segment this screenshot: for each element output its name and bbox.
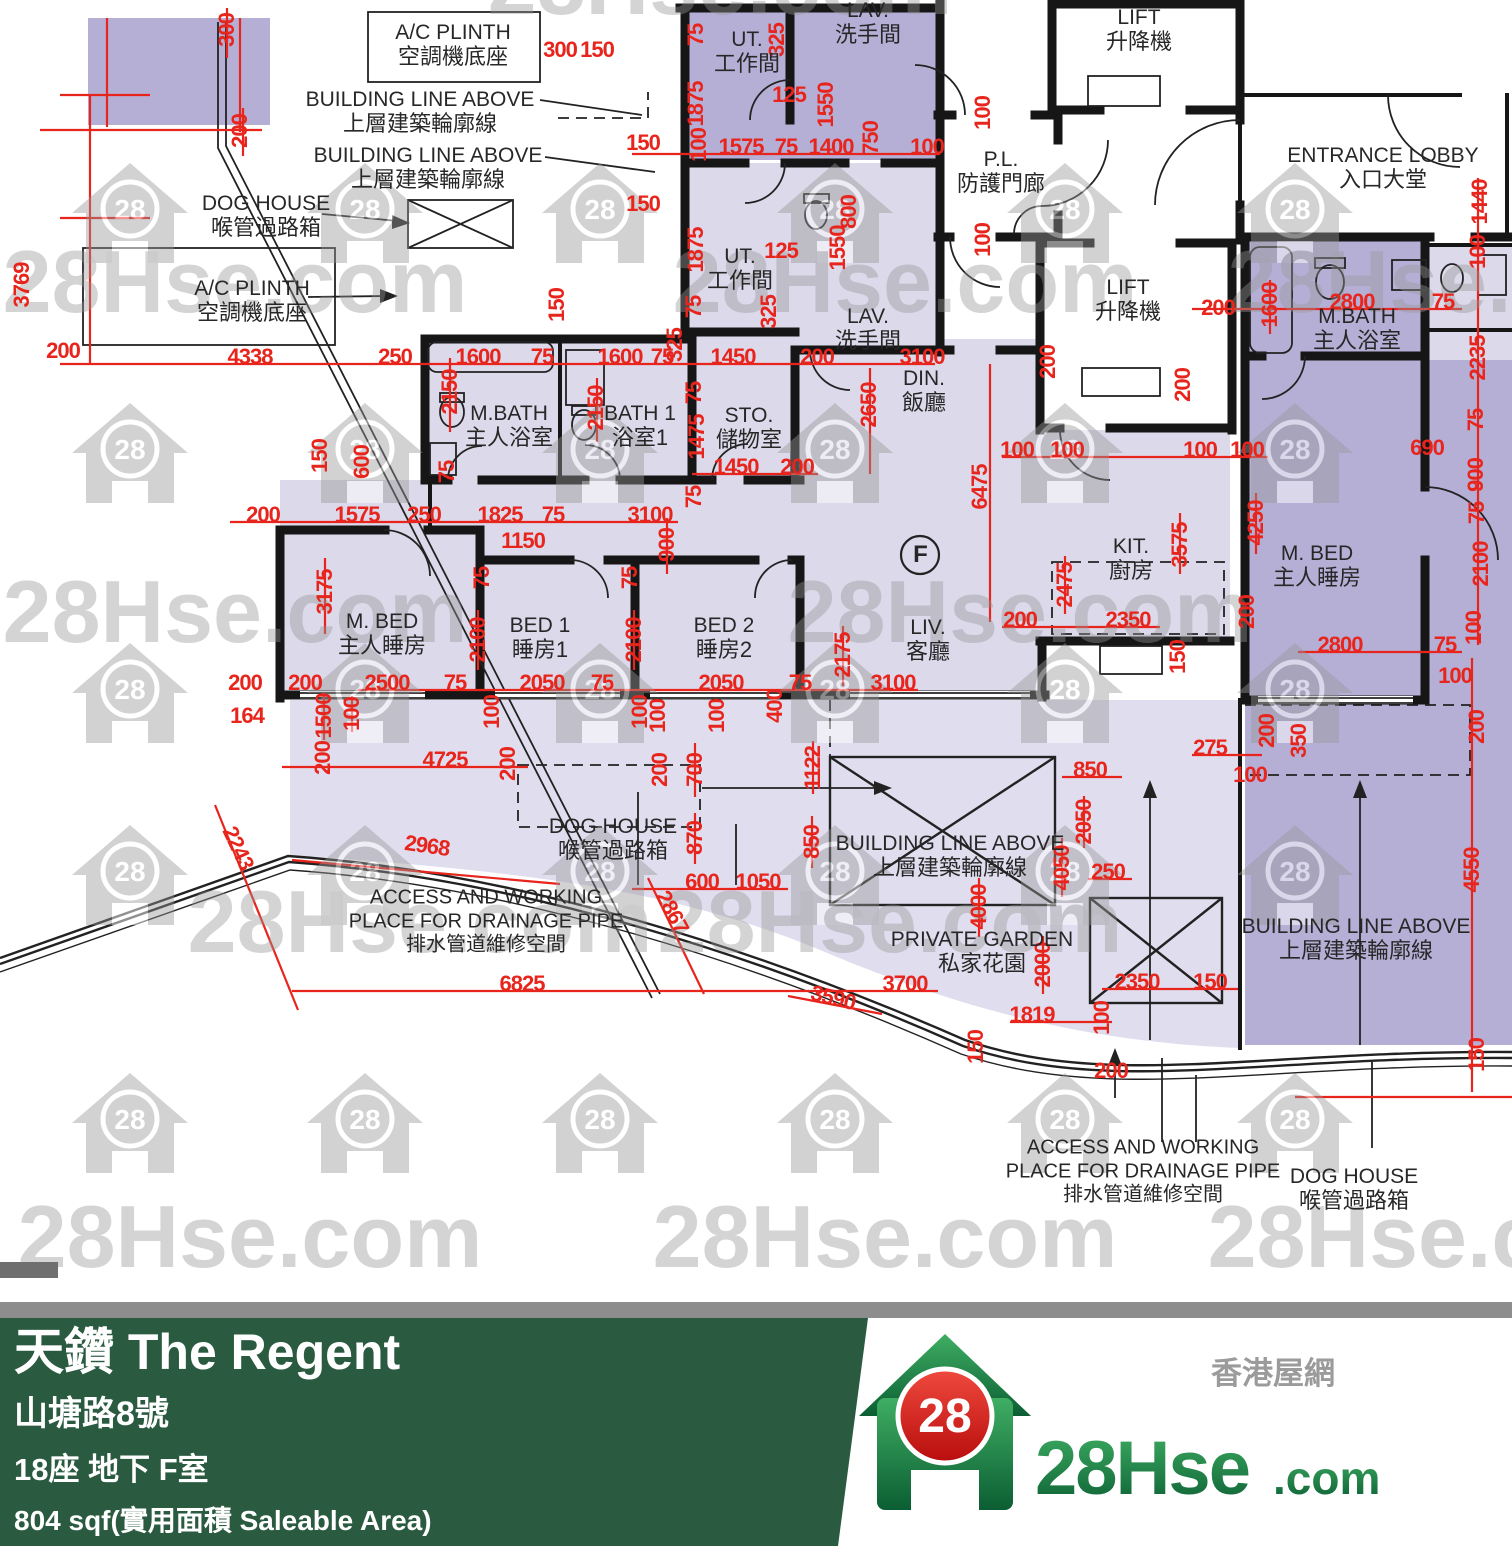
room-label: BUILDING LINE ABOVE上層建築輪廓線 (306, 88, 535, 136)
dim-label: 250 (378, 346, 412, 368)
dim-label: 100 (1233, 764, 1267, 786)
room-label: LIV.客廳 (906, 616, 950, 664)
dim-label: 1819 (1010, 1004, 1055, 1026)
dim-label: 2175 (832, 633, 854, 678)
plan-edge-chip (0, 1262, 58, 1278)
dim-label: 690 (1410, 437, 1444, 459)
dim-label: 200 (312, 741, 334, 775)
dim-label: 400 (764, 689, 786, 723)
room-label: DIN.飯廳 (902, 367, 946, 415)
dim-label: 164 (230, 705, 264, 727)
dim-label: 150 (1193, 971, 1227, 993)
room-label: KIT.廚房 (1109, 535, 1153, 583)
dim-label: 100 (1438, 665, 1472, 687)
dim-label: 2050 (1073, 800, 1095, 845)
dim-label: 75 (1465, 409, 1487, 431)
room-label: UT.工作間 (707, 245, 773, 293)
dim-label: 4338 (228, 346, 273, 368)
house-logo-icon: 28 (859, 1334, 1031, 1510)
dim-label: 900 (1465, 458, 1487, 492)
room-label: DOG HOUSE喉管過路箱 (549, 815, 677, 863)
dim-label: 1600 (598, 346, 643, 368)
dim-label: 200 (46, 340, 80, 362)
estate-name: 天鑽 The Regent (14, 1324, 868, 1380)
dim-label: 3100 (628, 504, 673, 526)
dim-label: 75 (683, 296, 705, 318)
footer-banner: 天鑽 The Regent 山塘路8號 18座 地下 F室 804 sqf(實用… (0, 1318, 868, 1546)
footer: 天鑽 The Regent 山塘路8號 18座 地下 F室 804 sqf(實用… (0, 1318, 1512, 1546)
dim-label: 2475 (1054, 563, 1076, 608)
dim-label: 600 (351, 445, 373, 479)
dim-label: 3175 (314, 570, 336, 615)
note-label: ACCESS AND WORKINGPLACE FOR DRAINAGE PIP… (1006, 1137, 1281, 1208)
plan-ground-band (0, 1302, 1512, 1318)
dim-label: 150 (626, 193, 660, 215)
dim-label: 350 (1288, 724, 1310, 758)
room-label: M. BED主人睡房 (338, 610, 426, 658)
dim-label: 3590 (809, 982, 858, 1014)
dim-label: 2050 (699, 672, 744, 694)
dim-label: 200 (649, 753, 671, 787)
room-label: UT.工作間 (714, 28, 780, 76)
room-label: P.L.防護門廊 (957, 148, 1045, 196)
dim-label: 150 (580, 39, 614, 61)
dim-label: 1600 (1259, 283, 1281, 328)
dim-label: 2243 (219, 823, 258, 873)
dim-label: 100 (481, 695, 503, 729)
dim-label: 150 (1466, 1038, 1488, 1072)
dim-label: 100 (1183, 439, 1217, 461)
unit-info: 18座 地下 F室 (14, 1444, 868, 1489)
dim-label: 2050 (520, 672, 565, 694)
room-label: BUILDING LINE ABOVE上層建築輪廓線 (836, 832, 1065, 880)
dim-label: 75 (1434, 634, 1456, 656)
dim-label: 1825 (478, 504, 523, 526)
dim-label: 1050 (736, 871, 781, 893)
dim-label: 100 (688, 128, 710, 162)
room-label: STO.儲物室 (716, 404, 782, 452)
dim-label: 150 (546, 288, 568, 322)
dim-label: 325 (664, 328, 686, 362)
dim-label: 6825 (500, 973, 545, 995)
unit-letter: F (913, 543, 927, 567)
dim-label: 100 (1000, 439, 1034, 461)
dim-label: 850 (801, 825, 823, 859)
dim-label: 75 (531, 346, 553, 368)
dim-label: 200 (288, 672, 322, 694)
plan-labels: 3002003769200433825030015015015075325187… (0, 0, 1512, 1302)
room-label: BED 1睡房1 (510, 614, 571, 662)
room-label: DOG HOUSE喉管過路箱 (1290, 1165, 1418, 1213)
dim-label: 1122 (802, 746, 824, 790)
site-logo[interactable]: 28 28Hse .com 香港屋網 (845, 1318, 1495, 1546)
dim-label: 75 (444, 672, 466, 694)
room-label: LAV.洗手間 (835, 0, 901, 47)
logo-tagline: 香港屋網 (1211, 1356, 1335, 1391)
dim-label: 200 (1256, 714, 1278, 748)
room-label: PRIVATE GARDEN私家花園 (891, 928, 1073, 976)
dim-label: 100 (1091, 1001, 1113, 1035)
room-label: A/C PLINTH空調機底座 (194, 277, 310, 325)
dim-label: 1450 (711, 346, 756, 368)
room-label: M.BATH主人浴室 (465, 402, 553, 450)
dim-label: 200 (1236, 595, 1258, 629)
dim-label: 200 (1172, 368, 1194, 402)
dim-label: 75 (471, 567, 493, 589)
dim-label: 75 (619, 567, 641, 589)
dim-label: 150 (626, 132, 660, 154)
dim-label: 1150 (501, 530, 545, 552)
room-label: LIFT升降機 (1106, 6, 1172, 54)
dim-label: 325 (758, 295, 780, 329)
dim-label: 1575 (719, 136, 764, 158)
dim-label: 2150 (439, 370, 461, 415)
dim-label: 800 (838, 195, 860, 229)
dim-label: 200 (1037, 345, 1059, 379)
dim-label: 1500 (313, 694, 335, 739)
dim-label: 200 (1003, 609, 1037, 631)
dim-label: 100 (972, 223, 994, 257)
dim-label: 75 (436, 461, 458, 483)
dim-label: 3100 (871, 672, 916, 694)
room-label: BUILDING LINE ABOVE上層建築輪廓線 (1242, 915, 1471, 963)
dim-label: 3769 (11, 263, 33, 308)
dim-label: 700 (684, 753, 706, 787)
dim-label: 125 (772, 84, 806, 106)
room-label: BATH 1浴室1 (604, 402, 676, 450)
dim-label: 75 (685, 24, 707, 46)
dim-label: 2350 (1106, 609, 1151, 631)
dim-label: 870 (684, 821, 706, 855)
dim-label: 100 (972, 96, 994, 130)
dim-label: 200 (497, 747, 519, 781)
dim-label: 200 (229, 114, 251, 148)
dim-label: 1450 (714, 456, 759, 478)
dim-label: 2100 (1470, 542, 1492, 587)
dim-label: 2867 (652, 887, 693, 937)
dim-label: 100 (1230, 439, 1264, 461)
dim-label: 100 (647, 699, 669, 733)
dim-label: 850 (1073, 759, 1107, 781)
room-label: BED 2睡房2 (694, 614, 755, 662)
dim-label: 100 (341, 697, 363, 731)
dim-label: 4000 (968, 885, 990, 930)
dim-label: 3700 (883, 973, 928, 995)
dim-label: 75 (789, 672, 811, 694)
dim-label: 275 (1193, 737, 1227, 759)
room-label: ENTRANCE LOBBY入口大堂 (1287, 144, 1478, 192)
dim-label: 75 (683, 382, 705, 404)
dim-label: 75 (683, 486, 705, 508)
dim-label: 2350 (1115, 971, 1160, 993)
dim-label: 100 (1463, 611, 1485, 645)
room-label: DOG HOUSE喉管過路箱 (202, 192, 330, 240)
dim-label: 1475 (686, 415, 708, 460)
logo-badge-28: 28 (918, 1390, 971, 1443)
dim-label: 900 (656, 528, 678, 562)
dim-label: 100 (706, 699, 728, 733)
dim-label: 100 (1050, 439, 1084, 461)
dim-label: 2100 (623, 618, 645, 663)
dim-label: 250 (1091, 861, 1125, 883)
floorplan-page: 28 28 28 28 28 28 28 28 28 28 (0, 0, 1512, 1546)
room-label: LIFT升降機 (1095, 276, 1161, 324)
room-label: M.BATH主人浴室 (1313, 305, 1401, 353)
dim-label: 200 (228, 672, 262, 694)
dim-label: 2650 (858, 383, 880, 428)
estate-address: 山塘路8號 (14, 1386, 868, 1435)
dim-label: 300 (216, 13, 238, 47)
dim-label: 100 (910, 136, 944, 158)
dim-label: 6475 (969, 465, 991, 510)
dim-label: 150 (965, 1030, 987, 1064)
logo-site-name: 28Hse (1035, 1426, 1249, 1511)
dim-label: 2100 (467, 618, 489, 663)
dim-label: 1575 (335, 504, 380, 526)
dim-label: 1400 (809, 136, 854, 158)
dim-label: 250 (407, 504, 441, 526)
dim-label: 4550 (1461, 848, 1483, 893)
logo-site-suffix: .com (1273, 1452, 1380, 1504)
room-label: A/C PLINTH空調機底座 (395, 21, 511, 69)
room-label: LAV.洗手間 (835, 305, 901, 353)
dim-label: 1875 (685, 82, 707, 127)
dim-label: 75 (542, 504, 564, 526)
dim-label: 75 (1432, 291, 1454, 313)
dim-label: 150 (1167, 640, 1189, 674)
room-label: BUILDING LINE ABOVE上層建築輪廓線 (314, 144, 543, 192)
dim-label: 4250 (1245, 501, 1267, 546)
dim-label: 1550 (827, 226, 849, 271)
dim-label: 750 (860, 121, 882, 155)
dim-label: 200 (1201, 297, 1235, 319)
dim-label: 1600 (456, 346, 501, 368)
saleable-area: 804 sqf(實用面積 Saleable Area) (14, 1499, 868, 1539)
dim-label: 75 (591, 672, 613, 694)
dim-label: 2800 (1318, 634, 1363, 656)
dim-label: 1875 (685, 228, 707, 273)
dim-label: 300 (543, 39, 577, 61)
room-label: M. BED主人睡房 (1273, 542, 1361, 590)
dim-label: 2500 (365, 672, 410, 694)
dim-label: 3575 (1169, 523, 1191, 568)
dim-label: 2235 (1467, 336, 1489, 381)
note-label: ACCESS AND WORKINGPLACE FOR DRAINAGE PIP… (349, 887, 624, 958)
dim-label: 600 (685, 871, 719, 893)
dim-label: 75 (775, 136, 797, 158)
dim-label: 2968 (403, 832, 451, 860)
dim-label: 200 (246, 504, 280, 526)
dim-label: 4725 (423, 749, 468, 771)
dim-label: 200 (800, 346, 834, 368)
dim-label: 200 (1466, 710, 1488, 744)
dim-label: 75 (1466, 502, 1488, 524)
dim-label: 200 (1094, 1060, 1128, 1082)
dim-label: 150 (309, 439, 331, 473)
dim-label: 3100 (900, 346, 945, 368)
dim-label: 200 (780, 456, 814, 478)
dim-label: 100 (1467, 235, 1489, 269)
dim-label: 1550 (815, 83, 837, 128)
